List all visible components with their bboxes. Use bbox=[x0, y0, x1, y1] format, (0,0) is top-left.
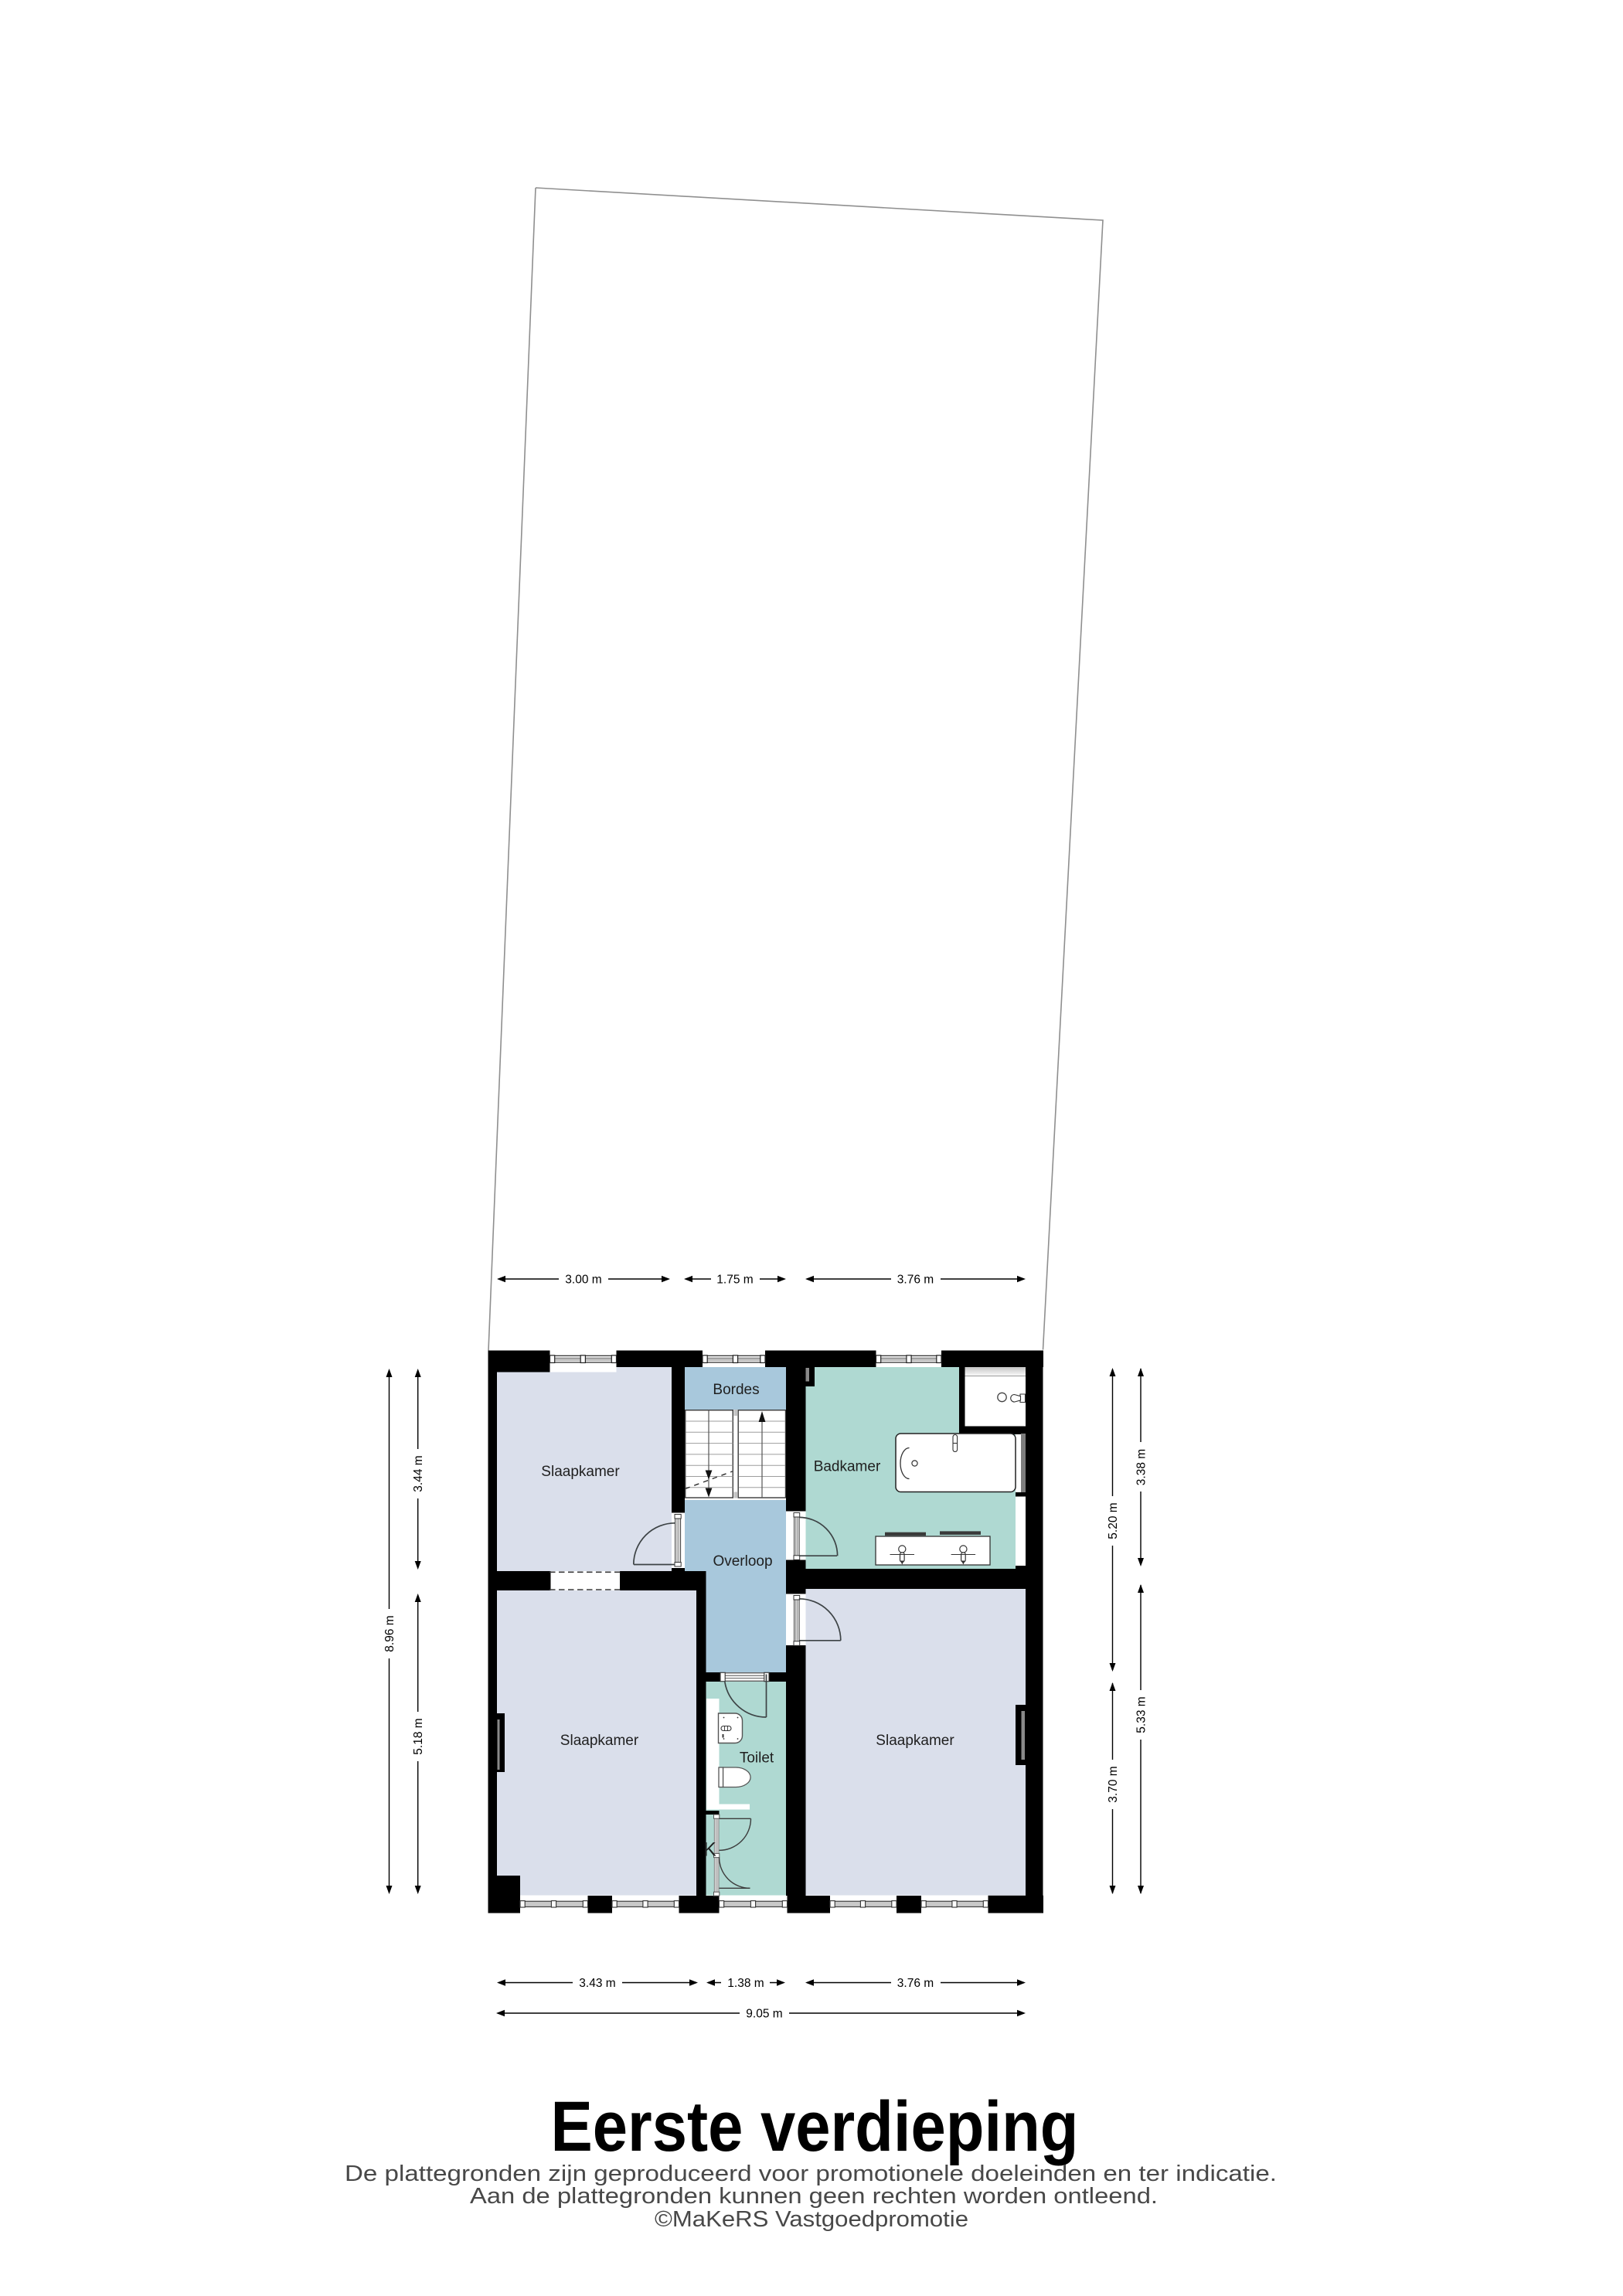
svg-text:Badkamer: Badkamer bbox=[814, 1459, 881, 1475]
svg-text:Bordes: Bordes bbox=[713, 1382, 759, 1398]
svg-text:3.43 m: 3.43 m bbox=[579, 1977, 615, 1990]
svg-text:3.44 m: 3.44 m bbox=[412, 1455, 425, 1492]
svg-text:Overloop: Overloop bbox=[713, 1553, 772, 1570]
svg-text:3.76 m: 3.76 m bbox=[897, 1977, 934, 1990]
svg-text:De plattegronden zijn geproduc: De plattegronden zijn geproduceerd voor … bbox=[345, 2162, 1277, 2186]
svg-text:9.05 m: 9.05 m bbox=[746, 2008, 782, 2021]
svg-text:1.38 m: 1.38 m bbox=[727, 1977, 764, 1990]
svg-text:Toilet: Toilet bbox=[740, 1750, 774, 1767]
svg-text:Slaapkamer: Slaapkamer bbox=[541, 1464, 620, 1480]
svg-text:3.76 m: 3.76 m bbox=[897, 1274, 934, 1287]
svg-text:Aan de plattegronden kunnen ge: Aan de plattegronden kunnen geen rechten… bbox=[470, 2184, 1158, 2209]
svg-text:1.75 m: 1.75 m bbox=[716, 1274, 753, 1287]
svg-text:8.96 m: 8.96 m bbox=[383, 1615, 396, 1651]
svg-text:Eerste verdieping: Eerste verdieping bbox=[551, 2087, 1079, 2166]
svg-text:3.70 m: 3.70 m bbox=[1107, 1766, 1120, 1802]
svg-text:K: K bbox=[703, 1839, 716, 1861]
svg-text:3.38 m: 3.38 m bbox=[1135, 1449, 1148, 1485]
svg-text:Slaapkamer: Slaapkamer bbox=[876, 1733, 954, 1749]
svg-text:5.18 m: 5.18 m bbox=[412, 1718, 425, 1754]
svg-text:3.00 m: 3.00 m bbox=[565, 1274, 601, 1287]
svg-text:5.20 m: 5.20 m bbox=[1107, 1502, 1120, 1539]
svg-text:Slaapkamer: Slaapkamer bbox=[560, 1733, 639, 1749]
svg-text:©MaKeRS Vastgoedpromotie: ©MaKeRS Vastgoedpromotie bbox=[655, 2207, 968, 2232]
svg-text:5.33 m: 5.33 m bbox=[1135, 1696, 1148, 1733]
